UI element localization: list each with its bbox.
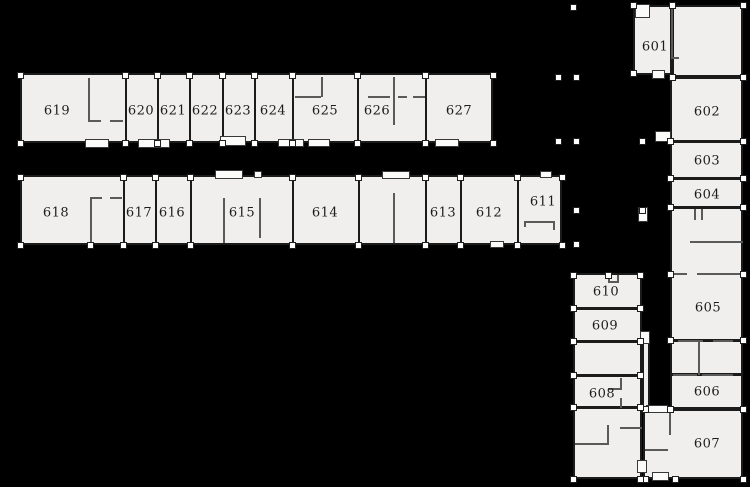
column-marker: [573, 207, 580, 214]
room-label-607: 607: [694, 437, 720, 452]
room-label-602: 602: [694, 105, 720, 120]
column-marker: [639, 207, 646, 214]
room-label-619: 619: [44, 104, 70, 119]
room-label-624: 624: [260, 104, 286, 119]
room-605: [670, 207, 743, 340]
door-marker: [382, 171, 410, 179]
room-label-618: 618: [43, 206, 69, 221]
column-marker: [573, 138, 580, 145]
partition-wall: [620, 427, 642, 429]
room-label-605: 605: [695, 301, 721, 316]
column-marker: [555, 74, 562, 81]
room-label-612: 612: [476, 206, 502, 221]
room-label-610: 610: [593, 285, 619, 300]
room-label-604: 604: [694, 188, 720, 203]
column-marker: [573, 74, 580, 81]
column-marker: [570, 4, 577, 11]
column-marker: [740, 2, 747, 9]
column-marker: [639, 138, 646, 145]
partition-wall: [698, 341, 700, 375]
partition-wall: [607, 425, 609, 445]
room-618: [20, 177, 123, 245]
floor-block: [672, 5, 743, 77]
room-label-608: 608: [589, 387, 615, 402]
partition-wall: [575, 443, 609, 445]
room-619: [20, 75, 125, 143]
column-marker: [570, 476, 577, 483]
room-label-614: 614: [312, 206, 338, 221]
partition-wall: [393, 193, 395, 243]
room-label-627: 627: [446, 104, 472, 119]
room-label-609: 609: [592, 319, 618, 334]
column-marker: [555, 138, 562, 145]
room-label-606: 606: [694, 385, 720, 400]
room-611: [517, 177, 562, 245]
room-label-622: 622: [192, 104, 218, 119]
room-label-616: 616: [159, 206, 185, 221]
room-label-611: 611: [530, 195, 556, 210]
room-label-620: 620: [128, 104, 154, 119]
room-label-617: 617: [126, 206, 152, 221]
room-label-601: 601: [642, 40, 668, 55]
room-label-626: 626: [364, 104, 390, 119]
room-label-603: 603: [694, 154, 720, 169]
partition-wall: [713, 340, 733, 342]
partition-wall: [671, 57, 679, 59]
column-marker: [573, 241, 580, 248]
room-label-621: 621: [160, 104, 186, 119]
room-label-625: 625: [312, 104, 338, 119]
room-label-623: 623: [225, 104, 251, 119]
room-label-613: 613: [430, 206, 456, 221]
room-label-615: 615: [229, 206, 255, 221]
floor-plan-canvas: 6196206216226236246256266276186176166156…: [0, 0, 750, 487]
wall-segment: [358, 177, 360, 245]
